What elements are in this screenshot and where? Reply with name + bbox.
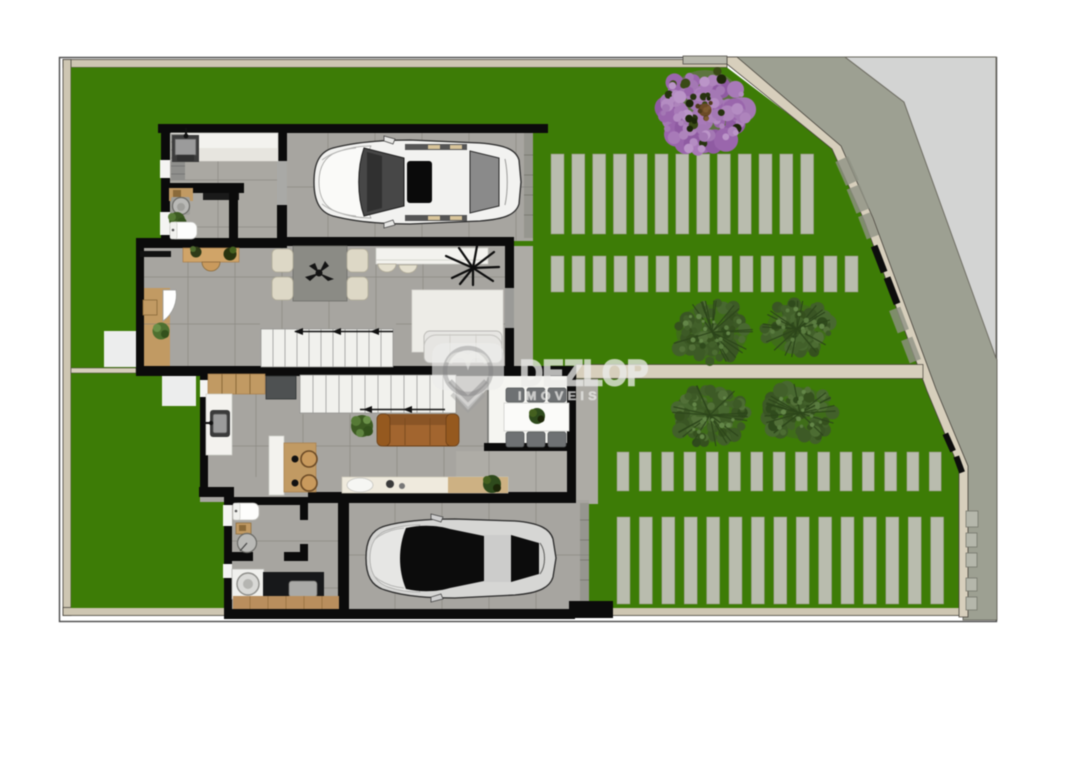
svg-text:IMÓVEIS: IMÓVEIS xyxy=(518,390,601,403)
svg-text:DEZLOP: DEZLOP xyxy=(520,354,648,393)
